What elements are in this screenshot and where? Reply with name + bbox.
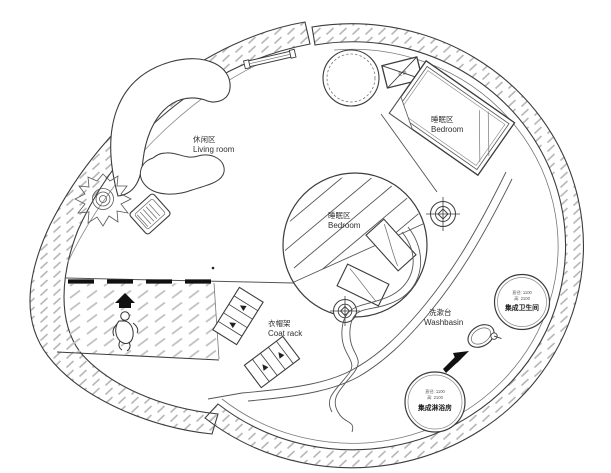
coffee-table xyxy=(140,153,224,194)
crosshair-symbol xyxy=(426,197,460,231)
label-bedroom-center-en: Bedroom xyxy=(328,221,361,230)
label-bedroom-upper-zh: 睡眠区 xyxy=(431,115,454,124)
side-table xyxy=(129,193,172,235)
round-table xyxy=(323,50,379,106)
entrance-porch xyxy=(57,267,294,360)
label-washbasin-zh: 洗漱台 xyxy=(429,307,452,317)
entry-chord-line xyxy=(66,278,294,283)
label-coat-rack-zh: 衣帽架 xyxy=(268,318,291,328)
bathroom-pod-name: 集成卫生间 xyxy=(504,303,539,312)
bathroom-pod-spec-height: 高: 2100 xyxy=(514,295,531,302)
label-living-room-en: Living room xyxy=(193,145,235,154)
label-living-room-zh: 休闲区 xyxy=(193,134,216,144)
bathroom-pod: 直径: 1100 高: 2100 集成卫生间 xyxy=(495,275,550,330)
label-coat-rack-en: Coat rack xyxy=(268,329,303,338)
plan-dot xyxy=(212,267,215,270)
label-washbasin-en: Washbasin xyxy=(424,318,463,327)
washbasin-oval xyxy=(464,319,502,354)
label-bedroom-upper-en: Bedroom xyxy=(431,125,464,134)
bathroom-pod-spec-diameter: 直径: 1100 xyxy=(512,289,532,295)
floor-plan-page: 空调 xyxy=(0,0,611,473)
shower-pod: 直径: 1100 高: 2100 集成淋浴房 xyxy=(405,372,465,432)
direction-arrow-icon xyxy=(443,351,469,373)
shower-pod-spec-height: 高: 2100 xyxy=(427,394,444,401)
coat-rack-unit xyxy=(213,287,263,344)
floor-plan-drawing: 空调 xyxy=(0,0,611,473)
label-bedroom-center-zh: 睡眠区 xyxy=(328,211,351,220)
shower-pod-spec-diameter: 直径: 1100 xyxy=(425,388,445,394)
coat-rack-unit xyxy=(244,336,299,387)
shower-pod-name: 集成淋浴房 xyxy=(417,403,452,412)
